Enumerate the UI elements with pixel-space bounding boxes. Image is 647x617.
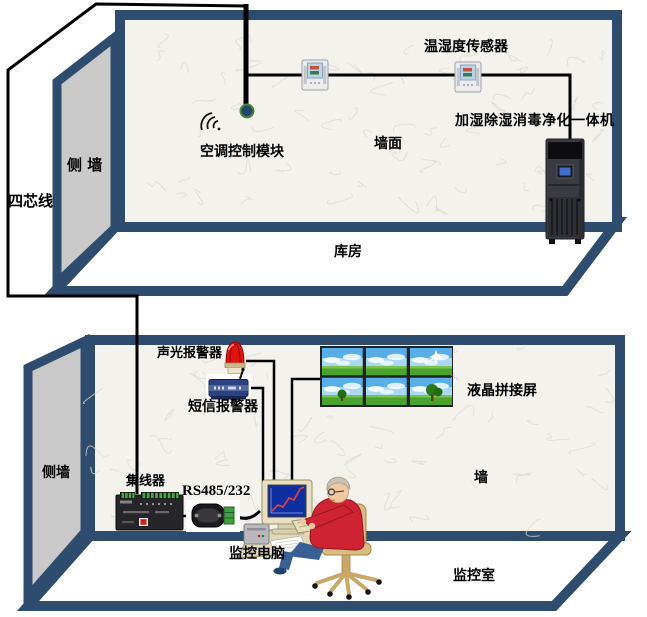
- bottom-side-wall-label: 侧墙: [42, 466, 70, 481]
- bottom-wall-label: 墙: [474, 471, 488, 486]
- sensor-label: 温湿度传感器: [424, 40, 508, 55]
- video-wall-label: 液晶拼接屏: [467, 384, 537, 399]
- temp-humidity-sensor-1: [302, 60, 328, 90]
- purifier-cabinet: [546, 139, 584, 244]
- hub-device: [116, 492, 183, 530]
- video-wall: [320, 346, 453, 407]
- ac-module-label: 空调控制模块: [200, 145, 284, 160]
- serial-label: RS485/232: [182, 483, 250, 500]
- rs485-converter: [186, 500, 240, 532]
- scene-svg: [0, 0, 647, 617]
- printer-box: [244, 524, 269, 544]
- top-side-wall-label: 侧 墙: [67, 157, 102, 174]
- sms-alarm-label: 短信报警器: [188, 400, 258, 415]
- hub-label: 集线器: [126, 475, 165, 489]
- sound-light-alarm-label: 声光报警器: [157, 347, 222, 361]
- purifier-label: 加湿除湿消毒净化一体机: [455, 114, 615, 129]
- monitoring-room-label: 监控室: [453, 569, 495, 584]
- top-wall-label: 墙面: [374, 137, 402, 152]
- temp-humidity-sensor-2: [455, 62, 481, 92]
- diagram-canvas: 四芯线 侧 墙 空调控制模块 温湿度传感器 墙面 加湿除湿消毒净化一体机 库房 …: [0, 0, 647, 617]
- computer-label: 监控电脑: [229, 547, 285, 562]
- four-core-cable-label: 四芯线: [8, 193, 53, 210]
- warehouse-label: 库房: [334, 245, 362, 260]
